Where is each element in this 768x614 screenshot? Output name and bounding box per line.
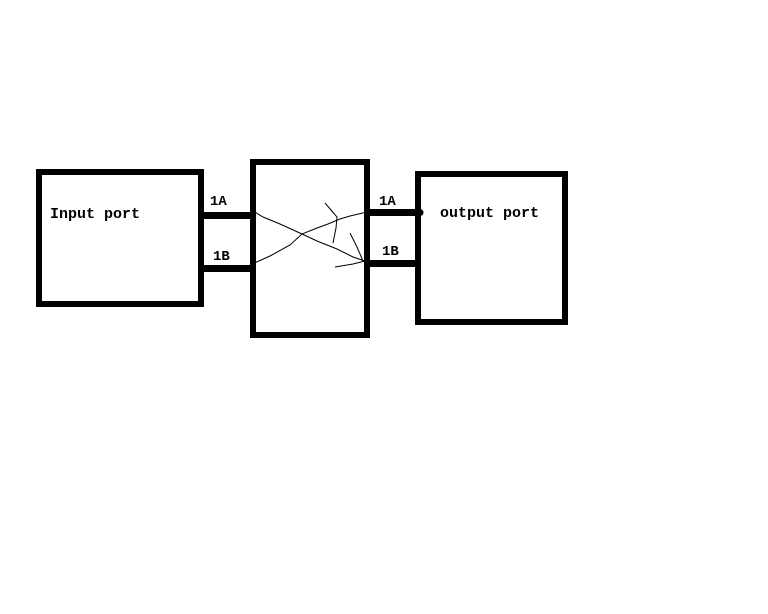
input-port-label: Input port [50, 207, 140, 222]
cross-line-1b-to-1a [250, 212, 367, 265]
cross-line-1a-to-1b [253, 211, 365, 261]
right-connector-1a-label: 1A [379, 195, 396, 209]
connector-endpoint-dot [417, 209, 424, 216]
right-connector-1b-label: 1B [382, 245, 399, 259]
input-port-box [39, 172, 201, 304]
left-connector-1a-label: 1A [210, 195, 227, 209]
switch-box [253, 162, 367, 335]
diagram-svg [0, 0, 768, 614]
diagram-canvas: Input port output port 1A 1B 1A 1B [0, 0, 768, 614]
output-port-box [418, 174, 565, 322]
arrowhead-lower-curve-icon [335, 261, 365, 267]
output-port-label: output port [440, 206, 539, 221]
left-connector-1b-label: 1B [213, 250, 230, 264]
